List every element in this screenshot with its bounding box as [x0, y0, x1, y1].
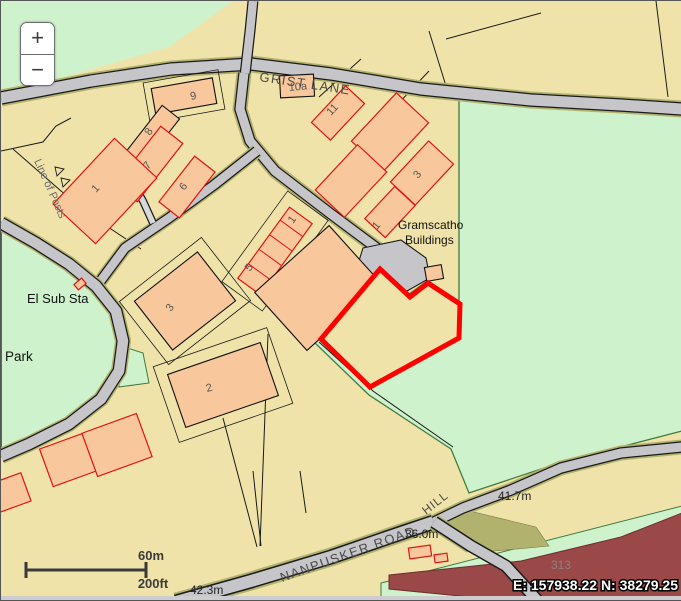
- building: [434, 553, 448, 563]
- building-number: 10a: [288, 80, 308, 94]
- elevation-41-7: 41.7m: [498, 489, 531, 503]
- bottom-edge-strip: [1, 596, 681, 600]
- map-canvas[interactable]: GRIST LANE NANPUSKER ROAD HILL El Sub St…: [1, 1, 681, 600]
- label-gramscatho-2: Buildings: [405, 233, 454, 247]
- coordinate-readout: E: 157938.22 N: 38279.25: [513, 577, 678, 593]
- elevation-42-3: 42.3m: [190, 583, 223, 597]
- building: [408, 545, 431, 559]
- faint-map-text: 313: [551, 558, 571, 572]
- scale-metric-label: 60m: [138, 548, 164, 563]
- zoom-control: + −: [20, 22, 55, 86]
- scale-imperial-label: 200ft: [138, 576, 169, 591]
- zoom-in-button[interactable]: +: [21, 23, 54, 54]
- label-gramscatho-1: Gramscatho: [398, 218, 464, 232]
- building: [424, 265, 443, 282]
- elevation-36-0: 36.0m: [405, 527, 438, 541]
- map-viewer-window: GRIST LANE NANPUSKER ROAD HILL El Sub St…: [0, 0, 681, 601]
- zoom-out-button[interactable]: −: [21, 54, 54, 86]
- label-park: Park: [5, 349, 33, 364]
- label-el-sub-sta: El Sub Sta: [27, 291, 89, 306]
